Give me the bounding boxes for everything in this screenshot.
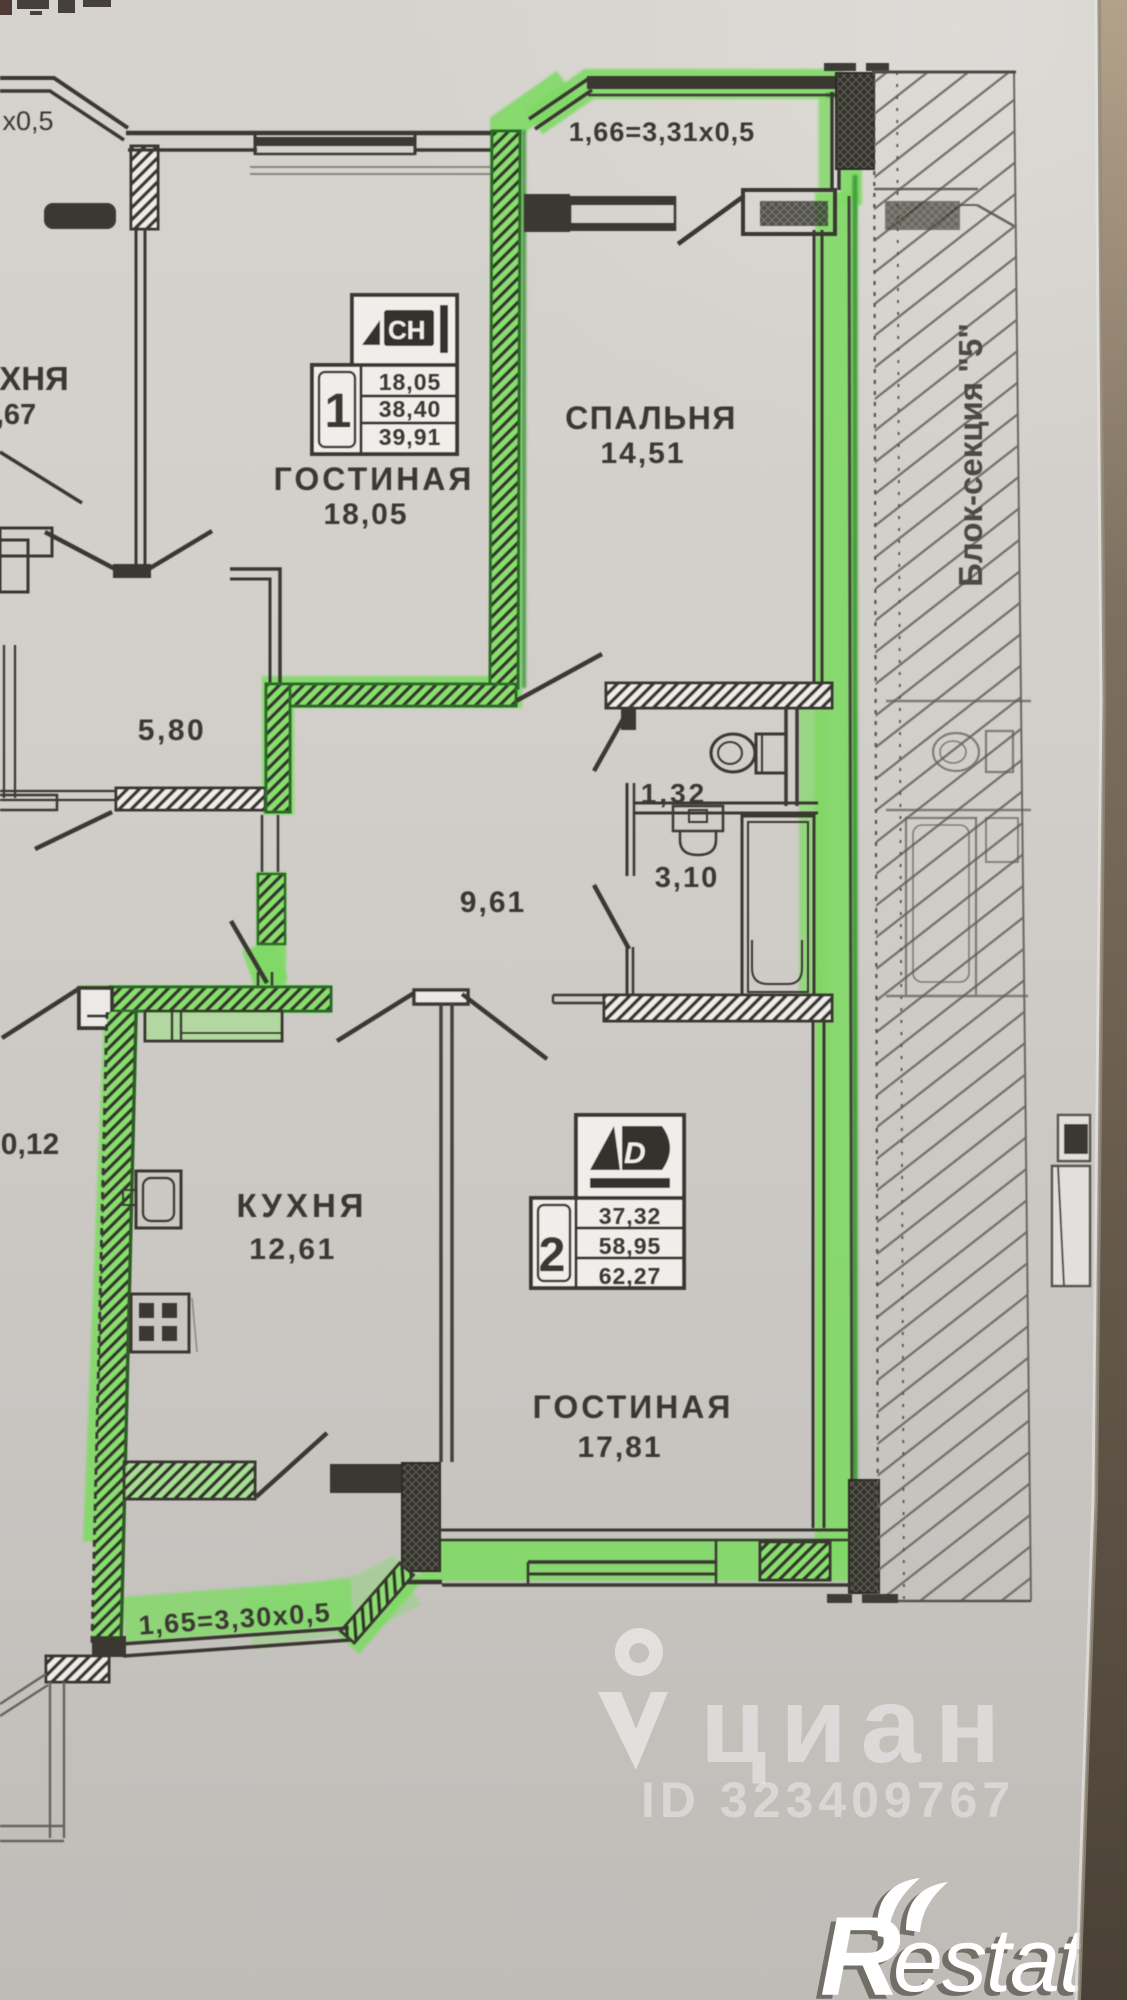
svg-text:3,10: 3,10 [655, 862, 719, 894]
svg-text:циан: циан [700, 1664, 1014, 1785]
svg-text:62,27: 62,27 [599, 1263, 662, 1289]
svg-text:СН: СН [388, 315, 426, 345]
svg-text:58,95: 58,95 [599, 1233, 662, 1259]
svg-text:ID 323409767: ID 323409767 [641, 1772, 1015, 1828]
svg-text:КУХНЯ: КУХНЯ [236, 1187, 367, 1224]
svg-text:12,61: 12,61 [249, 1233, 337, 1266]
svg-text:0,12: 0,12 [1, 1128, 59, 1161]
svg-text:ХНЯ: ХНЯ [0, 360, 69, 397]
svg-text:D: D [624, 1137, 646, 1170]
svg-text:38,40: 38,40 [379, 396, 442, 422]
svg-text:9,61: 9,61 [460, 886, 526, 919]
svg-text:x0,5: x0,5 [2, 106, 53, 136]
svg-text:1,32: 1,32 [641, 778, 708, 809]
svg-text:СПАЛЬНЯ: СПАЛЬНЯ [565, 400, 737, 436]
svg-text:1,66=3,31x0,5: 1,66=3,31x0,5 [569, 117, 755, 147]
svg-text:ГОСТИНАЯ: ГОСТИНАЯ [533, 1389, 734, 1425]
svg-text:37,32: 37,32 [599, 1203, 662, 1229]
svg-text:18,05: 18,05 [323, 498, 408, 531]
svg-text:ГОСТИНАЯ: ГОСТИНАЯ [274, 461, 475, 497]
svg-text:17,81: 17,81 [577, 1431, 662, 1464]
svg-text:,67: ,67 [0, 399, 36, 431]
svg-text:1: 1 [325, 385, 352, 438]
svg-text:14,51: 14,51 [600, 437, 685, 470]
svg-text:Блок-секция "5": Блок-секция "5" [952, 323, 989, 587]
svg-text:5,80: 5,80 [138, 714, 206, 747]
svg-text:18,05: 18,05 [379, 369, 442, 395]
svg-text:2: 2 [539, 1229, 566, 1282]
svg-text:39,91: 39,91 [379, 424, 442, 450]
